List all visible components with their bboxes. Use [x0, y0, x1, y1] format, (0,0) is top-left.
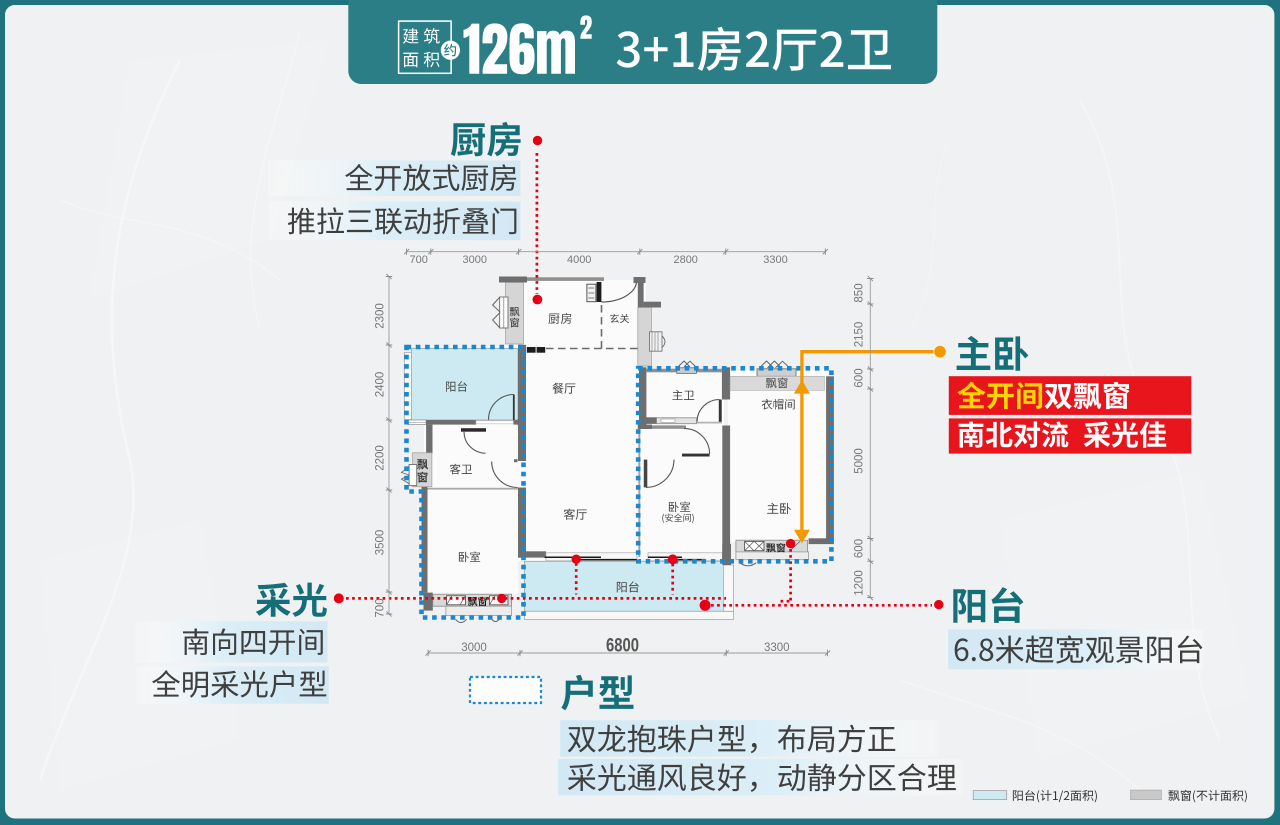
svg-text:2200: 2200 [375, 445, 387, 471]
svg-text:3300: 3300 [764, 642, 790, 654]
svg-text:600: 600 [854, 368, 866, 387]
svg-text:3000: 3000 [461, 642, 487, 654]
svg-text:1200: 1200 [854, 570, 866, 596]
svg-text:850: 850 [854, 283, 866, 302]
svg-text:2300: 2300 [375, 303, 387, 329]
svg-text:2800: 2800 [673, 254, 697, 266]
svg-text:4000: 4000 [567, 254, 591, 266]
svg-text:600: 600 [854, 539, 866, 558]
svg-text:3000: 3000 [463, 254, 487, 266]
svg-text:5000: 5000 [854, 448, 866, 474]
svg-text:6800: 6800 [606, 635, 639, 656]
svg-text:3500: 3500 [375, 530, 387, 556]
svg-text:2150: 2150 [854, 322, 866, 348]
svg-text:700: 700 [410, 254, 428, 266]
svg-text:700: 700 [375, 598, 387, 617]
svg-text:2400: 2400 [375, 372, 387, 398]
svg-text:3300: 3300 [763, 254, 787, 266]
